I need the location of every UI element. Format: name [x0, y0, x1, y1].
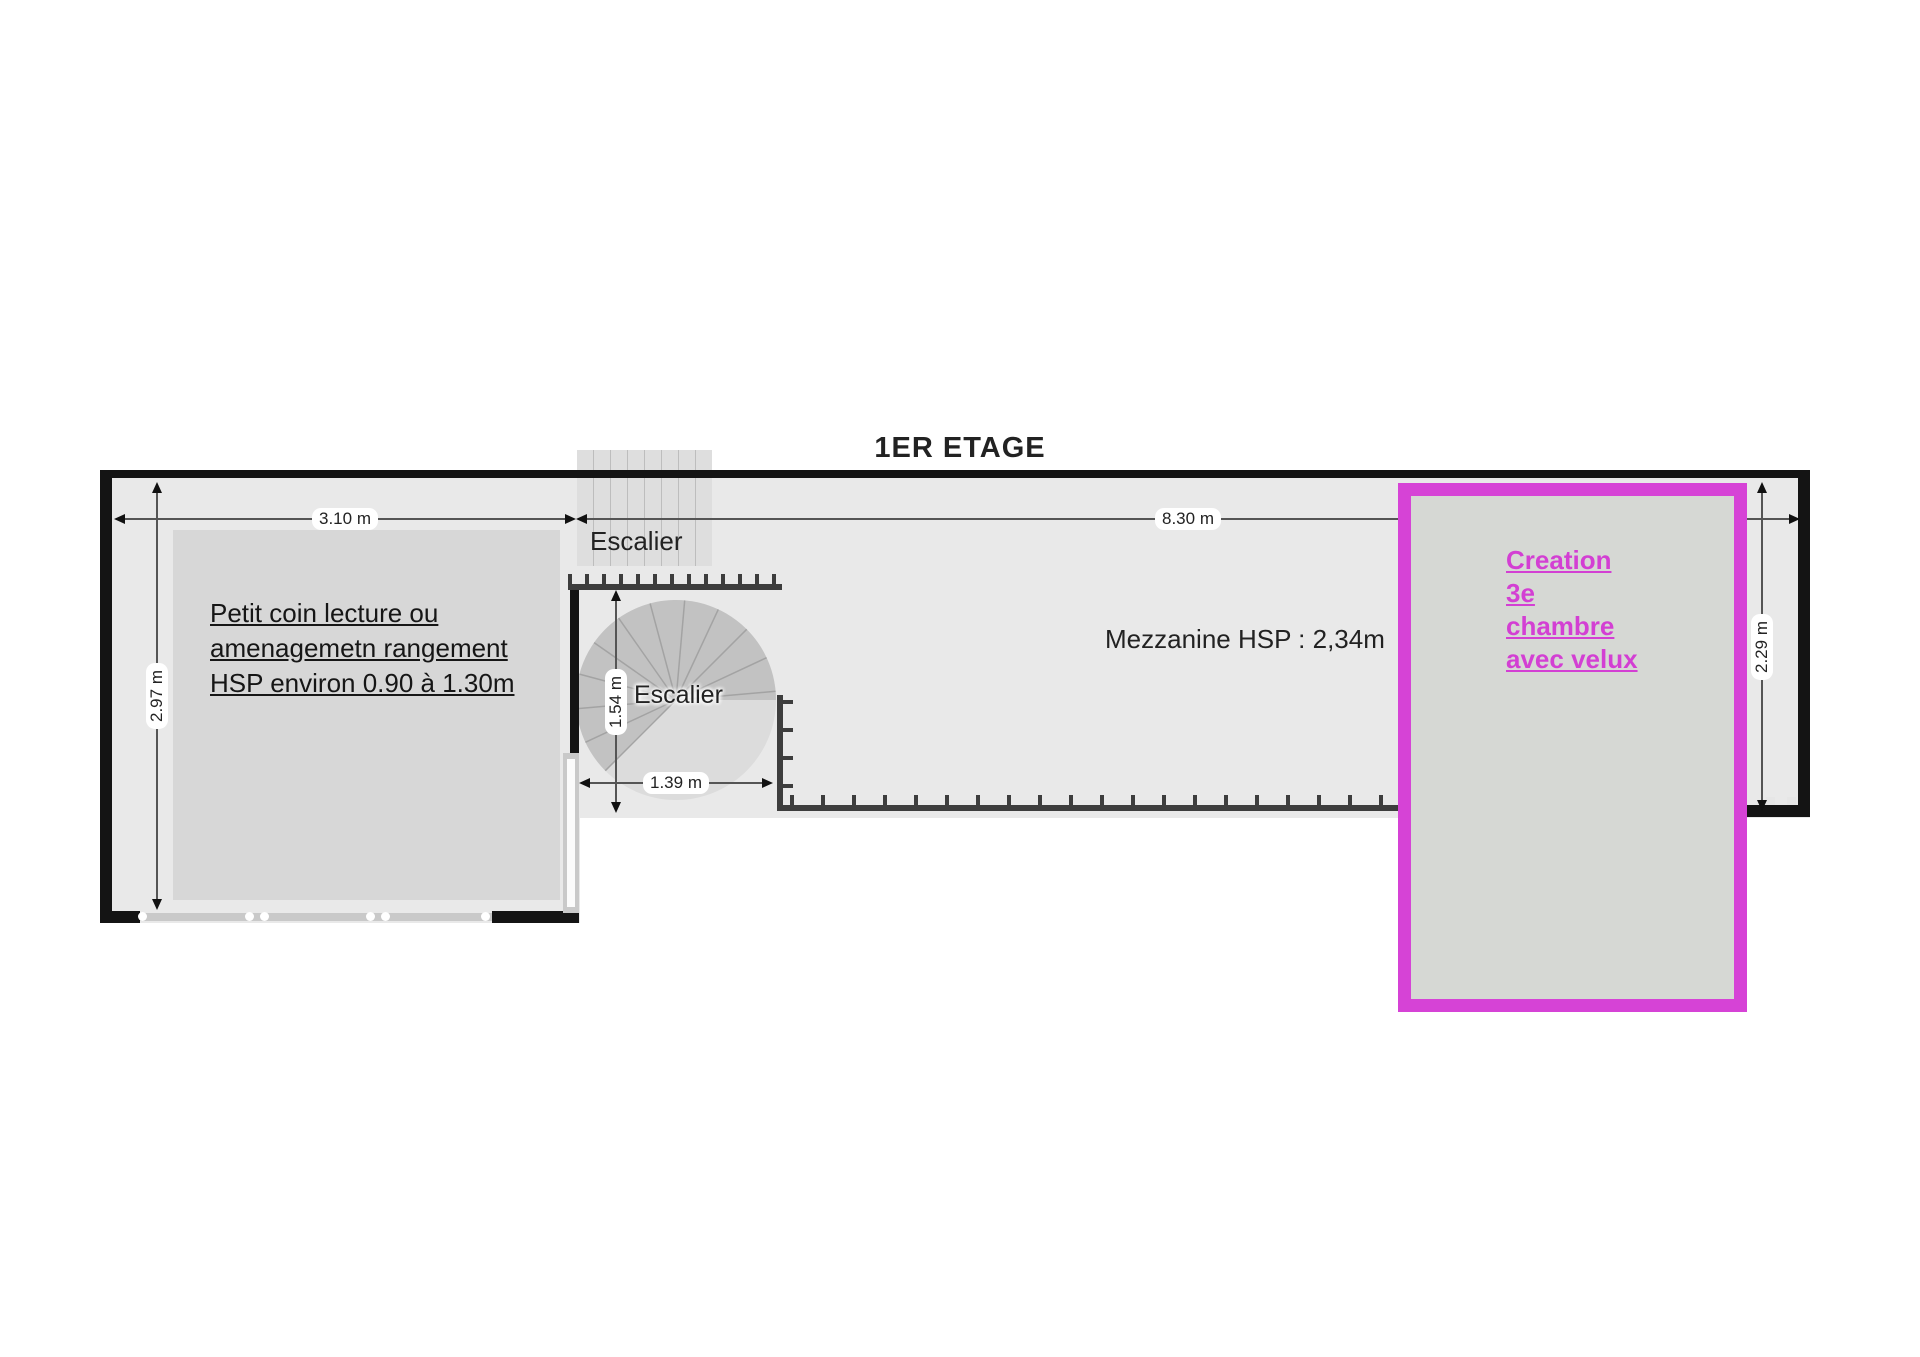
window-glazing-mark	[381, 912, 390, 921]
railing-ticks	[790, 795, 1398, 805]
dimension-label: 2.97 m	[146, 663, 168, 729]
arrow-right-icon	[1789, 514, 1800, 524]
note-line: HSP environ 0.90 à 1.30m	[210, 666, 514, 701]
left-room-note: Petit coin lecture ou amenagemetn rangem…	[210, 596, 514, 701]
window-glazing-mark	[481, 912, 490, 921]
window-glazing-mark	[260, 912, 269, 921]
arrow-down-icon	[1757, 800, 1767, 811]
wall-top	[100, 470, 1810, 478]
window-glazing-mark	[245, 912, 254, 921]
dimension-label: 1.54 m	[605, 669, 627, 735]
window-notch	[1766, 797, 1775, 805]
arrow-left-icon	[579, 778, 590, 788]
mezzanine-label: Mezzanine HSP : 2,34m	[1105, 624, 1385, 655]
arrow-left-icon	[114, 514, 125, 524]
note-line: Petit coin lecture ou	[210, 596, 514, 631]
arrow-down-icon	[152, 899, 162, 910]
dimension-label: 8.30 m	[1155, 508, 1221, 530]
new-room-highlight: Creation 3e chambre avec velux	[1398, 483, 1747, 1012]
new-room-line: Creation	[1506, 544, 1638, 577]
window-band-bottom	[140, 913, 492, 921]
arrow-left-icon	[576, 514, 587, 524]
page-title: 1ER ETAGE	[0, 432, 1920, 465]
wall-bottom-left-segment	[100, 911, 140, 923]
stair-label-top: Escalier	[590, 526, 682, 557]
dimension-label: 3.10 m	[312, 508, 378, 530]
wall-stair-left	[570, 590, 579, 753]
dimension-stair-width: 1.39 m	[581, 782, 771, 784]
dimension-left-room-width: 3.10 m	[116, 518, 574, 520]
stair-label-spiral: Escalier	[634, 681, 723, 710]
arrow-right-icon	[762, 778, 773, 788]
door-opening-strip	[563, 753, 579, 913]
left-room-inner-area	[173, 530, 560, 900]
window-notch	[1787, 797, 1796, 805]
new-room-note: Creation 3e chambre avec velux	[1506, 544, 1638, 676]
new-room-line: 3e	[1506, 577, 1638, 610]
dimension-label: 2.29 m	[1751, 614, 1773, 680]
new-room-line: avec velux	[1506, 643, 1638, 676]
note-line: amenagemetn rangement	[210, 631, 514, 666]
floor-plan-page: { "title": "1ER ETAGE", "left_room": { "…	[0, 0, 1920, 1357]
dimension-stair-height: 1.54 m	[615, 592, 617, 811]
railing-ticks	[568, 574, 782, 584]
arrow-up-icon	[152, 482, 162, 493]
arrow-down-icon	[611, 802, 621, 813]
new-room-line: chambre	[1506, 610, 1638, 643]
dimension-new-room-height: 2.29 m	[1761, 484, 1763, 809]
dimension-label: 1.39 m	[643, 772, 709, 794]
window-glazing-mark	[138, 912, 147, 921]
railing-ticks	[783, 700, 793, 806]
dimension-left-room-height: 2.97 m	[156, 484, 158, 908]
door-panel	[567, 759, 575, 907]
mezzanine-railing-top	[568, 584, 782, 590]
arrow-up-icon	[1757, 482, 1767, 493]
mezzanine-railing-bottom	[777, 805, 1400, 811]
arrow-up-icon	[611, 590, 621, 601]
arrow-right-icon	[565, 514, 576, 524]
window-glazing-mark	[366, 912, 375, 921]
wall-left	[100, 470, 112, 923]
